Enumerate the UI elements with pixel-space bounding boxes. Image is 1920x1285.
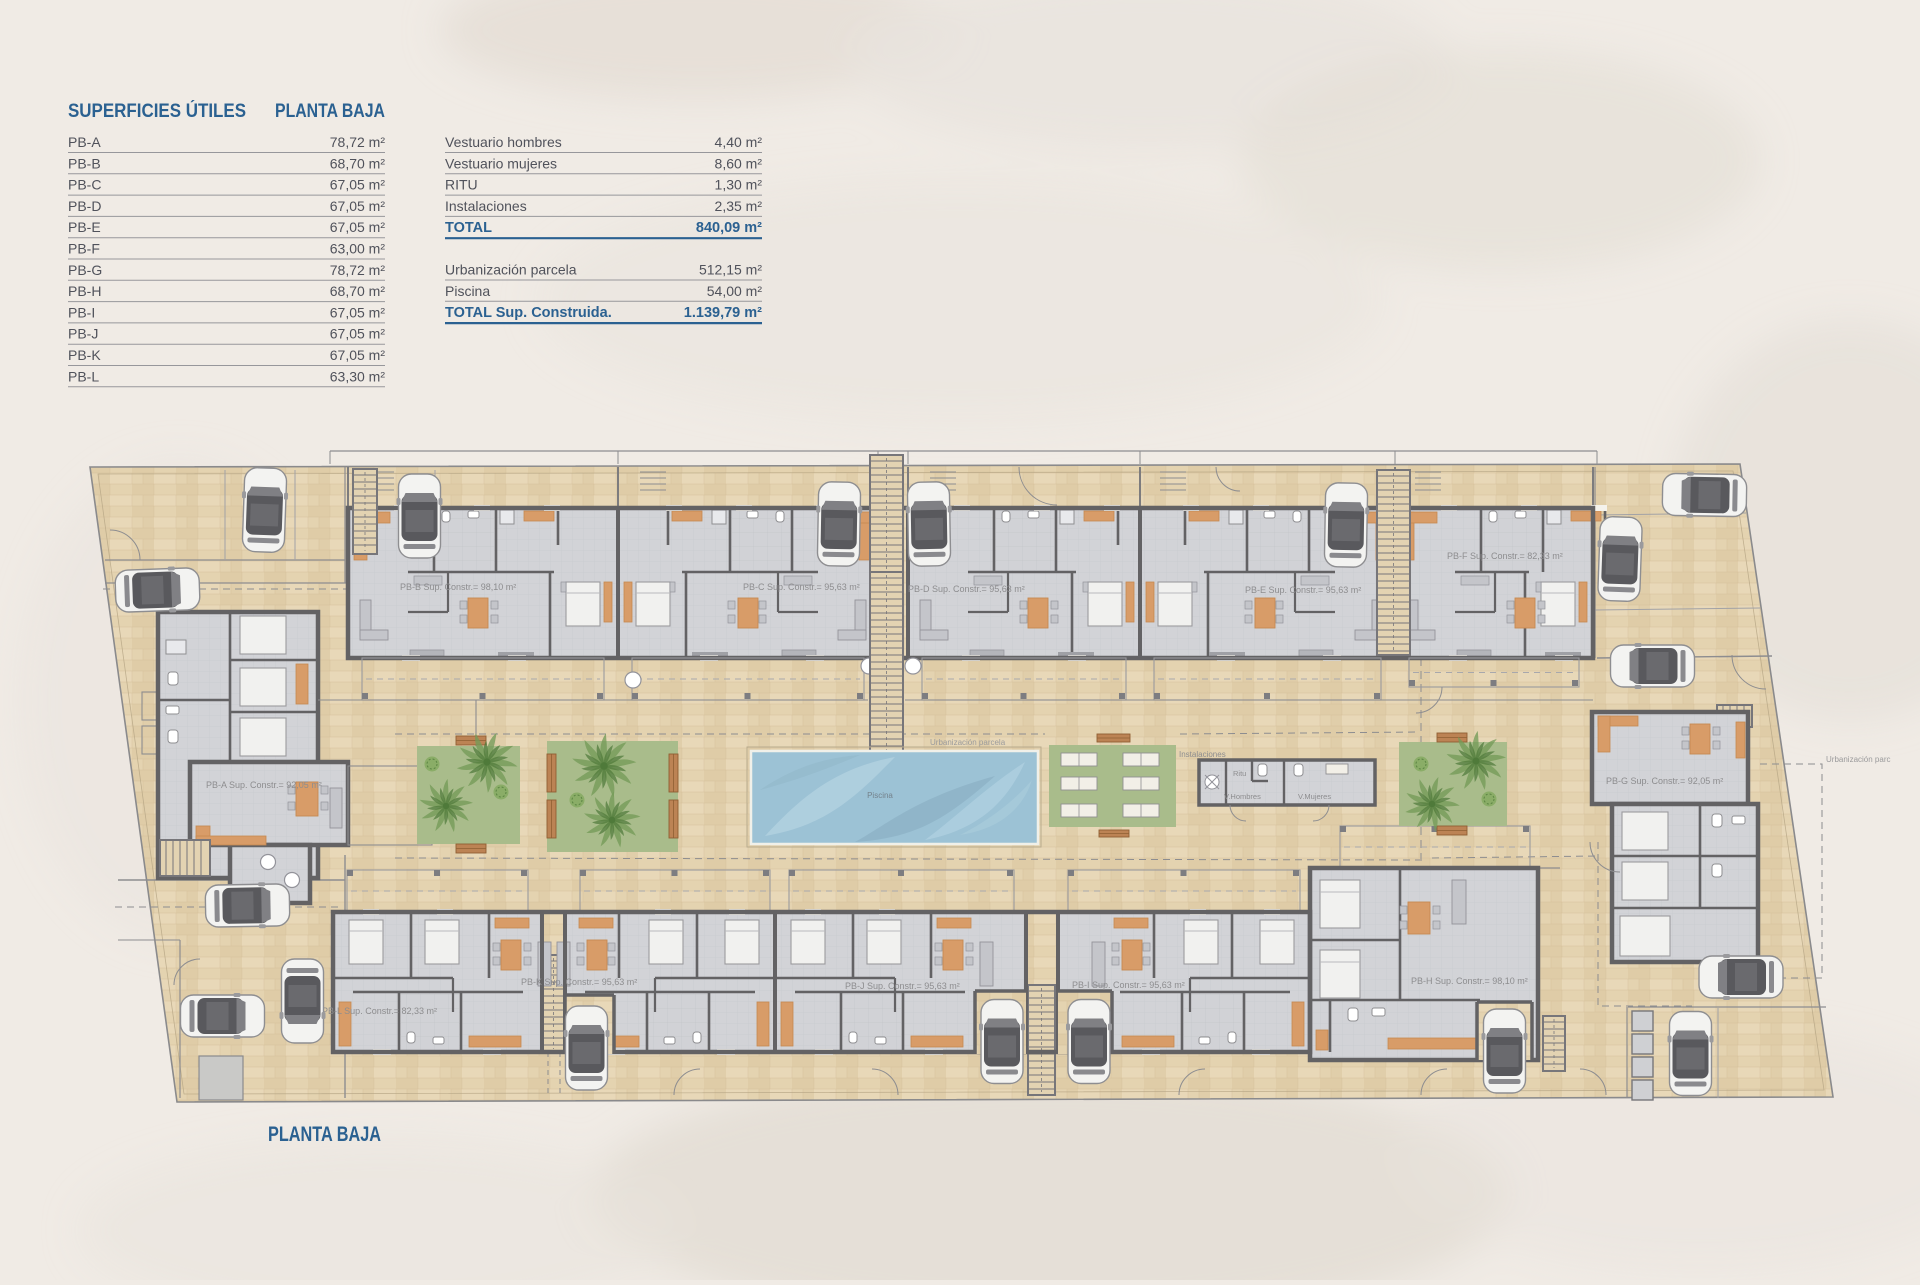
svg-text:63,30 m²: 63,30 m² (330, 368, 386, 384)
svg-text:67,05 m²: 67,05 m² (330, 177, 386, 193)
svg-text:PB-L: PB-L (68, 368, 99, 384)
svg-text:Ritu: Ritu (1233, 769, 1246, 778)
svg-text:PB-I Sup. Constr.= 95,63 m²: PB-I Sup. Constr.= 95,63 m² (1072, 980, 1185, 990)
svg-text:PB-G Sup. Constr.= 92,05 m²: PB-G Sup. Constr.= 92,05 m² (1606, 776, 1723, 786)
svg-text:67,05 m²: 67,05 m² (330, 198, 386, 214)
svg-text:PB-B: PB-B (68, 155, 101, 171)
svg-text:2,35 m²: 2,35 m² (715, 198, 763, 214)
svg-text:Vestuario hombres: Vestuario hombres (445, 134, 562, 150)
svg-text:SUPERFICIES ÚTILES: SUPERFICIES ÚTILES (68, 100, 246, 122)
svg-text:512,15 m²: 512,15 m² (699, 262, 762, 278)
svg-text:Urbanización parcela: Urbanización parcela (930, 738, 1006, 747)
svg-text:PB-K: PB-K (68, 347, 101, 363)
svg-text:54,00 m²: 54,00 m² (707, 283, 763, 299)
svg-text:PB-J: PB-J (68, 326, 98, 342)
svg-text:Instalaciones: Instalaciones (445, 198, 527, 214)
svg-text:TOTAL: TOTAL (445, 220, 492, 236)
svg-text:Piscina: Piscina (445, 283, 490, 299)
svg-text:840,09 m²: 840,09 m² (696, 220, 762, 236)
svg-text:PB-C Sup. Constr.= 95,63 m²: PB-C Sup. Constr.= 95,63 m² (743, 582, 860, 592)
svg-text:Vestuario mujeres: Vestuario mujeres (445, 155, 557, 171)
svg-text:68,70 m²: 68,70 m² (330, 283, 386, 299)
svg-text:67,05 m²: 67,05 m² (330, 304, 386, 320)
svg-text:78,72 m²: 78,72 m² (330, 262, 386, 278)
svg-text:PB-B Sup. Constr.= 98,10 m²: PB-B Sup. Constr.= 98,10 m² (400, 582, 516, 592)
svg-text:67,05 m²: 67,05 m² (330, 326, 386, 342)
svg-text:78,72 m²: 78,72 m² (330, 134, 386, 150)
svg-text:RITU: RITU (445, 177, 478, 193)
svg-text:PB-A: PB-A (68, 134, 101, 150)
svg-text:Piscina: Piscina (867, 791, 893, 800)
svg-text:PB-D: PB-D (68, 198, 101, 214)
svg-text:1,30 m²: 1,30 m² (715, 177, 763, 193)
svg-text:PB-I: PB-I (68, 304, 95, 320)
svg-text:63,00 m²: 63,00 m² (330, 241, 386, 257)
svg-text:PB-H: PB-H (68, 283, 101, 299)
svg-text:PB-F: PB-F (68, 241, 100, 257)
svg-text:1.139,79 m²: 1.139,79 m² (684, 305, 762, 321)
svg-text:PB-G: PB-G (68, 262, 102, 278)
svg-text:PB-D Sup. Constr.= 95,63 m²: PB-D Sup. Constr.= 95,63 m² (908, 584, 1025, 594)
svg-text:Instalaciones: Instalaciones (1179, 750, 1226, 759)
svg-text:PB-F Sup. Constr.= 82,33 m²: PB-F Sup. Constr.= 82,33 m² (1447, 551, 1563, 561)
svg-text:67,05 m²: 67,05 m² (330, 219, 386, 235)
svg-text:68,70 m²: 68,70 m² (330, 155, 386, 171)
svg-text:67,05 m²: 67,05 m² (330, 347, 386, 363)
svg-text:V.Mujeres: V.Mujeres (1298, 792, 1331, 801)
svg-text:PLANTA BAJA: PLANTA BAJA (275, 101, 385, 122)
svg-text:4,40 m²: 4,40 m² (715, 134, 763, 150)
svg-text:PB-K Sup. Constr.= 95,63 m²: PB-K Sup. Constr.= 95,63 m² (521, 977, 637, 987)
svg-text:Urbanización parc: Urbanización parc (1826, 755, 1890, 764)
svg-text:V.Hombres: V.Hombres (1224, 792, 1261, 801)
svg-text:PB-C: PB-C (68, 177, 101, 193)
svg-text:PB-J Sup. Constr.= 95,63 m²: PB-J Sup. Constr.= 95,63 m² (845, 981, 960, 991)
svg-text:8,60 m²: 8,60 m² (715, 155, 763, 171)
svg-text:PB-L Sup. Constr.= 82,33 m²: PB-L Sup. Constr.= 82,33 m² (322, 1006, 437, 1016)
svg-text:TOTAL Sup. Construida.: TOTAL Sup. Construida. (445, 305, 612, 321)
svg-text:Urbanización parcela: Urbanización parcela (445, 262, 577, 278)
svg-text:PLANTA BAJA: PLANTA BAJA (268, 1122, 381, 1146)
svg-text:PB-A Sup. Constr.= 92,05 m²: PB-A Sup. Constr.= 92,05 m² (206, 780, 322, 790)
svg-text:PB-E Sup. Constr.= 95,63 m²: PB-E Sup. Constr.= 95,63 m² (1245, 585, 1361, 595)
svg-text:PB-E: PB-E (68, 219, 101, 235)
svg-text:PB-H Sup. Constr.= 98,10 m²: PB-H Sup. Constr.= 98,10 m² (1411, 976, 1528, 986)
